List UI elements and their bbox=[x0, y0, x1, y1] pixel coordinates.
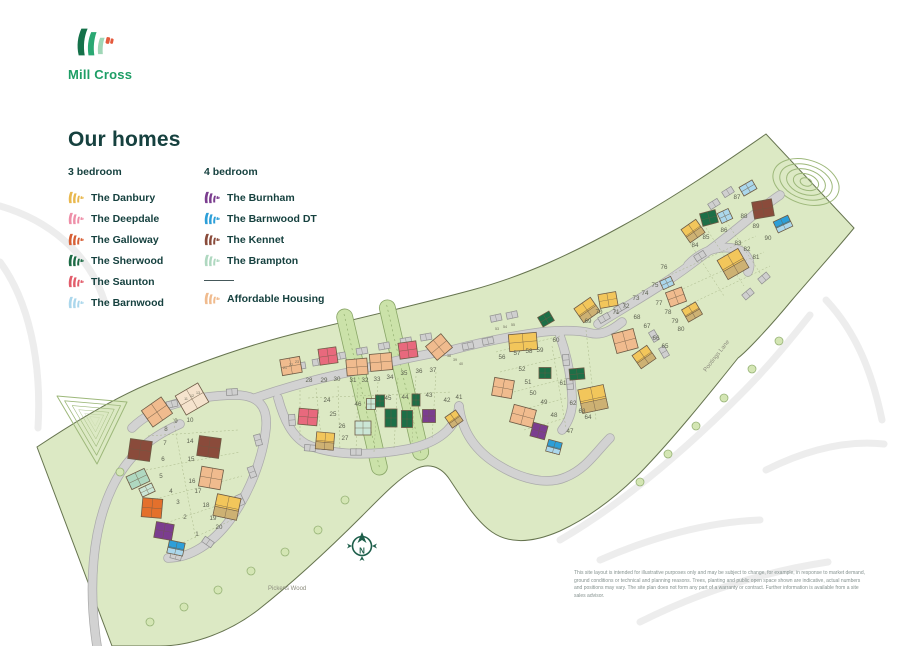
tree-icon bbox=[720, 394, 728, 402]
legend-item-the-galloway: The Galloway bbox=[68, 229, 180, 250]
plot-number-51: 51 bbox=[525, 379, 532, 386]
house-danbury bbox=[315, 432, 334, 451]
brand: Mill Cross bbox=[68, 26, 132, 82]
plot-number-1: 1 bbox=[195, 531, 199, 538]
plot-number-35: 35 bbox=[401, 370, 408, 377]
house-affordable bbox=[198, 466, 223, 490]
house-saunton bbox=[318, 347, 338, 365]
plot-number-69: 69 bbox=[585, 318, 592, 325]
housetype-brandmark-icon bbox=[204, 212, 220, 225]
house-sherwood bbox=[376, 395, 385, 407]
plot-number-70: 70 bbox=[596, 309, 603, 316]
plot-number-10: 10 bbox=[187, 417, 194, 424]
plot-number-73: 73 bbox=[633, 295, 640, 302]
plot-number-15: 15 bbox=[188, 456, 195, 463]
brand-name: Mill Cross bbox=[68, 67, 132, 82]
plot-number-83: 83 bbox=[735, 240, 742, 247]
tree-icon bbox=[775, 337, 783, 345]
plot-number-59: 59 bbox=[537, 347, 544, 354]
plot-number-77: 77 bbox=[656, 300, 663, 307]
house-sherwood bbox=[539, 368, 551, 379]
plot-number-76: 76 bbox=[661, 264, 668, 271]
legend-item-the-kennet: The Kennet bbox=[204, 229, 328, 250]
plot-number-47: 47 bbox=[567, 428, 574, 435]
site-plan-page: Mill Cross Our homes 3 bedroom The Danbu… bbox=[0, 0, 908, 646]
plot-number-32: 32 bbox=[362, 377, 369, 384]
housetype-brandmark-icon bbox=[204, 292, 220, 305]
housetype-brandmark-icon bbox=[204, 254, 220, 267]
tree-icon bbox=[247, 567, 255, 575]
plot-number-34: 34 bbox=[387, 374, 394, 381]
legend-item-label: The Burnham bbox=[227, 192, 295, 204]
plot-number-61: 61 bbox=[560, 380, 567, 387]
plot-number-22: 22 bbox=[289, 363, 293, 367]
garage-block bbox=[562, 354, 569, 366]
plot-number-87: 87 bbox=[734, 194, 741, 201]
plot-number-28: 28 bbox=[306, 377, 313, 384]
plot-number-56: 56 bbox=[499, 354, 506, 361]
plot-number-30: 30 bbox=[334, 376, 341, 383]
plot-number-60: 60 bbox=[553, 337, 560, 344]
plot-number-20: 20 bbox=[216, 524, 223, 531]
legend-item-label: The Sherwood bbox=[91, 255, 163, 267]
plot-number-54: 54 bbox=[503, 325, 507, 329]
plot-number-25: 25 bbox=[330, 411, 337, 418]
legend-column-2: 4 bedroom The Burnham The Barnwood DT Th… bbox=[204, 166, 328, 313]
plot-number-79: 79 bbox=[672, 318, 679, 325]
legend-item-the-barnwood: The Barnwood bbox=[68, 292, 180, 313]
plot-number-68: 68 bbox=[634, 314, 641, 321]
housetype-brandmark-icon bbox=[204, 191, 220, 204]
legend-item-label: Affordable Housing bbox=[227, 293, 324, 305]
house-sherwood bbox=[412, 394, 420, 406]
housetype-brandmark-icon bbox=[204, 233, 220, 246]
plot-number-3: 3 bbox=[176, 499, 180, 506]
plot-number-40: 40 bbox=[459, 362, 463, 366]
legend-title: Our homes bbox=[68, 128, 328, 152]
legend-item-affordable-housing: Affordable Housing bbox=[204, 288, 328, 309]
plot-number-19: 19 bbox=[210, 515, 217, 522]
legend-item-label: The Saunton bbox=[91, 276, 155, 288]
house-burnham bbox=[154, 522, 175, 541]
garage-block bbox=[304, 444, 316, 451]
tree-icon bbox=[664, 450, 672, 458]
house-saunton bbox=[298, 408, 318, 426]
plot-number-26: 26 bbox=[339, 423, 346, 430]
legend-item-the-burnham: The Burnham bbox=[204, 187, 328, 208]
house-brampton_light bbox=[367, 399, 376, 410]
house-affordable bbox=[346, 358, 368, 376]
plot-number-80: 80 bbox=[678, 326, 685, 333]
legend-column-heading: 4 bedroom bbox=[204, 166, 328, 178]
mill-cross-logo-icon bbox=[76, 26, 114, 58]
tree-icon bbox=[341, 496, 349, 504]
plot-number-72: 72 bbox=[623, 303, 630, 310]
plot-number-12: 12 bbox=[190, 394, 194, 398]
plot-number-71: 71 bbox=[613, 309, 620, 316]
plot-number-82: 82 bbox=[744, 246, 751, 253]
plot-number-65: 65 bbox=[662, 343, 669, 350]
tree-icon bbox=[314, 526, 322, 534]
plot-number-39: 39 bbox=[453, 358, 457, 362]
plot-number-57: 57 bbox=[514, 350, 521, 357]
plot-number-53: 53 bbox=[495, 327, 499, 331]
tree-icon bbox=[180, 603, 188, 611]
legend-item-the-brampton: The Brampton bbox=[204, 250, 328, 271]
plot-number-9: 9 bbox=[174, 418, 178, 425]
legend-item-the-deepdale: The Deepdale bbox=[68, 208, 180, 229]
plot-number-14: 14 bbox=[187, 438, 194, 445]
plot-number-64: 64 bbox=[585, 414, 592, 421]
legend-item-the-sherwood: The Sherwood bbox=[68, 250, 180, 271]
plot-number-8: 8 bbox=[164, 426, 168, 433]
legend-item-the-saunton: The Saunton bbox=[68, 271, 180, 292]
house-affordable bbox=[492, 377, 515, 398]
garage-block bbox=[351, 449, 362, 455]
compass-letter: N bbox=[359, 547, 365, 556]
house-sherwood bbox=[569, 368, 585, 380]
housetype-brandmark-icon bbox=[68, 191, 84, 204]
garage-block bbox=[288, 414, 295, 426]
house-brampton_light bbox=[355, 421, 371, 435]
plot-number-36: 36 bbox=[416, 368, 423, 375]
plot-number-6: 6 bbox=[161, 456, 165, 463]
tree-icon bbox=[116, 468, 124, 476]
house-kennet bbox=[752, 199, 775, 219]
housetype-brandmark-icon bbox=[68, 233, 84, 246]
legend-item-label: The Deepdale bbox=[91, 213, 159, 225]
plot-number-7: 7 bbox=[163, 440, 167, 447]
plot-number-58: 58 bbox=[526, 348, 533, 355]
house-kennet bbox=[197, 436, 222, 459]
tree-icon bbox=[636, 478, 644, 486]
house-sherwood bbox=[385, 409, 397, 427]
plot-number-13: 13 bbox=[196, 391, 200, 395]
tree-icon bbox=[214, 586, 222, 594]
plot-number-74: 74 bbox=[642, 290, 649, 297]
housetype-brandmark-icon bbox=[68, 296, 84, 309]
plot-number-41: 41 bbox=[456, 394, 463, 401]
plot-number-38: 38 bbox=[447, 354, 451, 358]
plot-number-86: 86 bbox=[721, 227, 728, 234]
tree-icon bbox=[146, 618, 154, 626]
plot-number-43: 43 bbox=[426, 392, 433, 399]
housetype-brandmark-icon bbox=[68, 212, 84, 225]
plot-number-29: 29 bbox=[321, 377, 328, 384]
plot-number-52: 52 bbox=[519, 366, 526, 373]
pickens-wood-label: Pickens Wood bbox=[268, 586, 306, 592]
legend-item-the-danbury: The Danbury bbox=[68, 187, 180, 208]
legend-item-the-barnwood-dt: The Barnwood DT bbox=[204, 208, 328, 229]
tree-icon bbox=[748, 365, 756, 373]
legend-column-1: 3 bedroom The Danbury The Deepdale The G… bbox=[68, 166, 180, 313]
legend-item-label: The Barnwood DT bbox=[227, 213, 317, 225]
house-kennet bbox=[128, 439, 153, 462]
house-burnham bbox=[423, 410, 436, 423]
legend-item-label: The Danbury bbox=[91, 192, 155, 204]
legend-item-label: The Galloway bbox=[91, 234, 159, 246]
plot-number-66: 66 bbox=[653, 335, 660, 342]
plot-number-2: 2 bbox=[183, 514, 187, 521]
plot-number-21: 21 bbox=[283, 366, 287, 370]
house-galloway bbox=[141, 498, 163, 519]
house-barnwood_dt bbox=[167, 540, 185, 556]
tree-icon bbox=[692, 422, 700, 430]
plot-number-42: 42 bbox=[444, 397, 451, 404]
plot-number-5: 5 bbox=[159, 473, 163, 480]
plot-number-89: 89 bbox=[753, 223, 760, 230]
housetype-brandmark-icon bbox=[68, 275, 84, 288]
house-danbury bbox=[598, 292, 618, 309]
plot-number-27: 27 bbox=[342, 435, 349, 442]
plot-number-49: 49 bbox=[541, 399, 548, 406]
plot-number-78: 78 bbox=[665, 309, 672, 316]
plot-number-85: 85 bbox=[703, 234, 710, 241]
plot-number-67: 67 bbox=[644, 323, 651, 330]
plot-number-16: 16 bbox=[189, 478, 196, 485]
plot-number-75: 75 bbox=[652, 282, 659, 289]
plot-number-17: 17 bbox=[195, 488, 202, 495]
plot-number-48: 48 bbox=[551, 412, 558, 419]
legend-column-heading: 3 bedroom bbox=[68, 166, 180, 178]
plot-number-45: 45 bbox=[385, 395, 392, 402]
plot-number-4: 4 bbox=[169, 488, 173, 495]
house-danbury bbox=[508, 332, 537, 351]
legend-divider bbox=[204, 280, 234, 281]
plot-number-24: 24 bbox=[324, 397, 331, 404]
plot-number-88: 88 bbox=[741, 213, 748, 220]
plot-number-18: 18 bbox=[203, 502, 210, 509]
house-sherwood bbox=[402, 411, 413, 428]
plot-number-90: 90 bbox=[765, 235, 772, 242]
plot-number-33: 33 bbox=[374, 376, 381, 383]
plot-number-37: 37 bbox=[430, 367, 437, 374]
disclaimer-text: This site layout is intended for illustr… bbox=[574, 570, 866, 600]
plot-number-81: 81 bbox=[753, 254, 760, 261]
garage-block bbox=[226, 388, 237, 395]
plot-number-46: 46 bbox=[355, 401, 362, 408]
plot-number-11: 11 bbox=[184, 397, 188, 401]
legend-item-label: The Kennet bbox=[227, 234, 284, 246]
plot-number-50: 50 bbox=[530, 390, 537, 397]
house-affordable bbox=[369, 353, 392, 372]
legend-columns: 3 bedroom The Danbury The Deepdale The G… bbox=[68, 166, 328, 313]
homes-legend: Our homes 3 bedroom The Danbury The Deep… bbox=[68, 128, 328, 313]
plot-number-44: 44 bbox=[402, 394, 409, 401]
compass: N bbox=[347, 532, 377, 561]
plot-number-23: 23 bbox=[295, 360, 299, 364]
tree-icon bbox=[281, 548, 289, 556]
housetype-brandmark-icon bbox=[68, 254, 84, 267]
house-saunton bbox=[398, 341, 418, 359]
legend-item-label: The Brampton bbox=[227, 255, 298, 267]
plot-number-62: 62 bbox=[570, 400, 577, 407]
plot-number-84: 84 bbox=[692, 242, 699, 249]
plot-number-31: 31 bbox=[350, 377, 357, 384]
site-plan-map: 1234567891011121314151617181920212223242… bbox=[0, 0, 908, 646]
legend-item-label: The Barnwood bbox=[91, 297, 164, 309]
house-danbury bbox=[213, 494, 241, 521]
plot-number-55: 55 bbox=[511, 323, 515, 327]
